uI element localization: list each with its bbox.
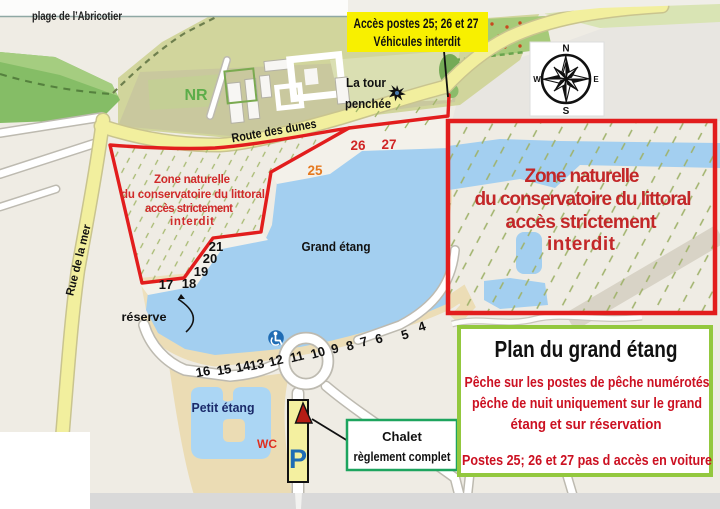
- svg-text:accès strictement: accès strictement: [145, 203, 233, 215]
- svg-text:Zone naturelle: Zone naturelle: [525, 166, 640, 187]
- svg-text:Zone naturelle: Zone naturelle: [154, 174, 230, 186]
- svg-text:Accès postes 25; 26 et 27: Accès postes 25; 26 et 27: [354, 15, 479, 31]
- svg-text:15: 15: [215, 361, 232, 378]
- svg-text:règlement complet: règlement complet: [354, 449, 452, 464]
- svg-text:17: 17: [159, 277, 173, 292]
- svg-text:Grand étang: Grand étang: [302, 239, 371, 254]
- svg-text:N: N: [562, 44, 569, 55]
- svg-text:penchée: penchée: [345, 97, 391, 111]
- svg-text:Pêche sur les postes de pêche: Pêche sur les postes de pêche numérotés: [465, 375, 710, 391]
- svg-text:S: S: [563, 106, 570, 117]
- svg-text:interdit: interdit: [547, 234, 616, 255]
- svg-text:du conservatoire du littoral: du conservatoire du littoral: [121, 189, 265, 201]
- svg-text:pêche de nuit uniquement sur l: pêche de nuit uniquement sur le grand: [472, 396, 702, 412]
- svg-text:du conservatoire du littoral: du conservatoire du littoral: [475, 189, 692, 210]
- svg-text:25: 25: [307, 163, 323, 178]
- svg-text:accès strictement: accès strictement: [506, 212, 658, 233]
- svg-text:P: P: [289, 444, 307, 474]
- svg-text:26: 26: [350, 138, 366, 153]
- svg-text:21: 21: [209, 239, 223, 254]
- svg-text:NR: NR: [184, 87, 208, 104]
- svg-text:Chalet: Chalet: [382, 429, 422, 444]
- svg-text:W: W: [533, 75, 541, 84]
- svg-text:interdit: interdit: [170, 216, 214, 228]
- svg-text:WC: WC: [257, 437, 277, 451]
- svg-text:13: 13: [248, 356, 265, 374]
- svg-text:16: 16: [194, 363, 211, 380]
- svg-text:Postes 25; 26 et 27 pas d accè: Postes 25; 26 et 27 pas d accès en voitu…: [462, 453, 712, 469]
- svg-text:Plan du grand étang: Plan du grand étang: [495, 336, 678, 362]
- svg-text:27: 27: [381, 137, 396, 152]
- svg-text:E: E: [593, 75, 599, 84]
- svg-text:plage de l’Abricotier: plage de l’Abricotier: [32, 9, 122, 23]
- svg-text:réserve: réserve: [122, 310, 167, 324]
- svg-text:étang et sur réservation: étang et sur réservation: [511, 417, 662, 433]
- svg-text:La tour: La tour: [346, 76, 386, 90]
- svg-text:Véhicules interdit: Véhicules interdit: [374, 33, 461, 49]
- svg-text:Petit étang: Petit étang: [192, 401, 255, 415]
- svg-text:19: 19: [194, 264, 208, 279]
